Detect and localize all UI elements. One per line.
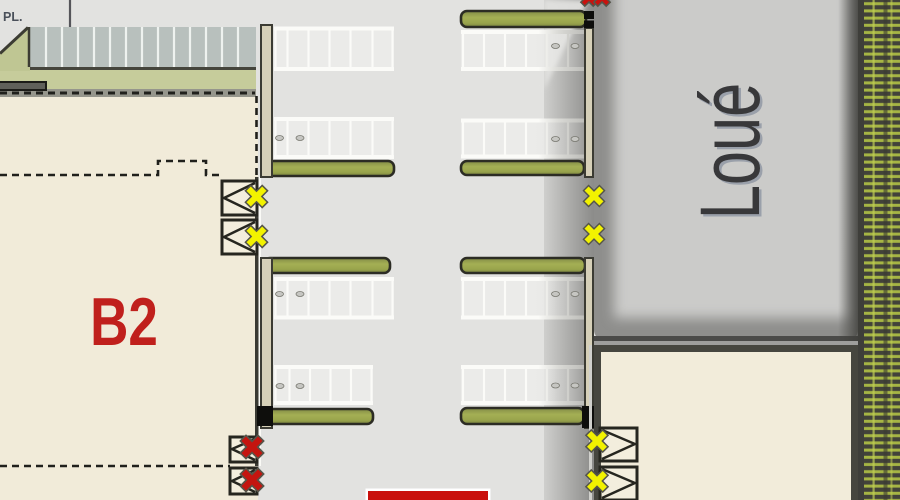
svg-text:B2: B2 [90,284,158,360]
svg-text:PL.: PL. [3,10,22,24]
svg-text:Loué: Loué [682,83,777,219]
